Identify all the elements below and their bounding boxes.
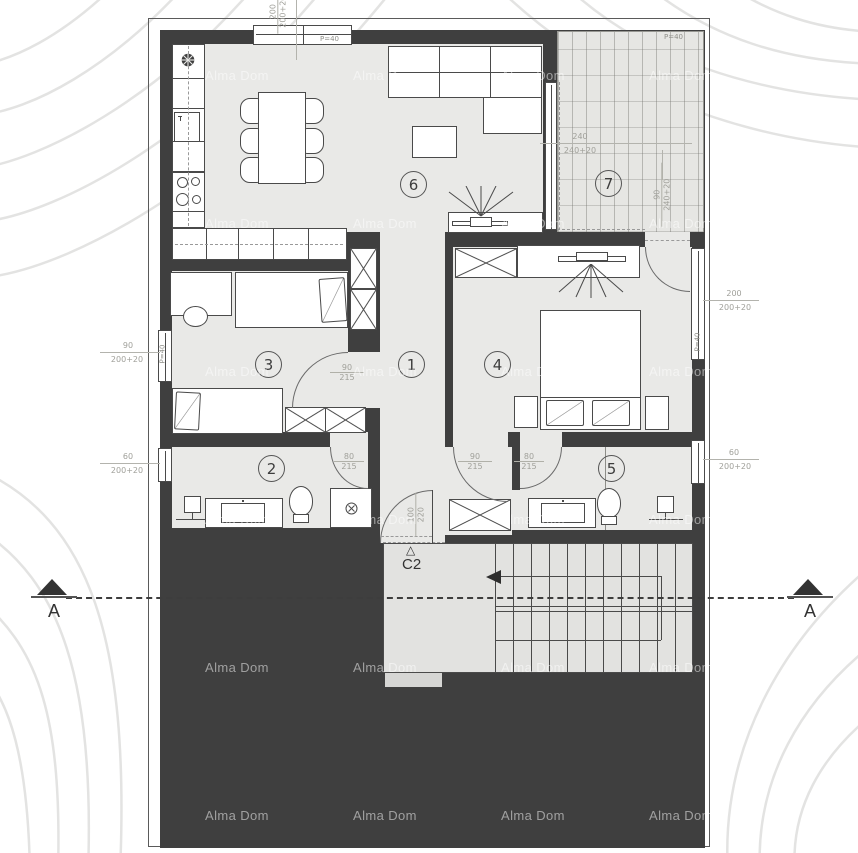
dim-line-right1 (703, 300, 759, 301)
dining-chair (304, 157, 324, 183)
window-right-room5 (691, 440, 705, 484)
pillow (592, 400, 630, 426)
room-number-5: 5 (598, 455, 625, 482)
washbasin-base (649, 519, 683, 520)
sofa (388, 46, 542, 98)
dim-line-right2 (703, 459, 759, 460)
section-line (66, 597, 794, 599)
door-gap-room4 (453, 432, 508, 447)
room-number-3: 3 (255, 351, 282, 378)
room-number-2: 2 (258, 455, 285, 482)
desk-chair (183, 306, 208, 327)
p40-window-left: P=40 (159, 345, 167, 364)
balcony-sliding-door (545, 82, 557, 230)
dim-top-window: 200200+20 (268, 0, 287, 34)
dim-entry-door: 100220 (406, 493, 425, 537)
wardrobe (325, 407, 366, 433)
vanity (528, 498, 596, 528)
stair-landing-line2 (495, 611, 693, 612)
terrace-edge-dashed (557, 229, 645, 230)
nightstand (645, 396, 669, 430)
coffee-table (412, 126, 457, 158)
dim-line-left2 (100, 463, 160, 464)
kitchen-dash-line-v (188, 46, 189, 226)
washbasin-pedestal (184, 496, 201, 513)
pillow (318, 277, 347, 323)
dim-door-room3: 90215 (330, 363, 364, 382)
section-label-right: A (804, 601, 816, 622)
balcony-door-dashed (559, 82, 560, 230)
stair-mark-label: C2 (402, 556, 421, 573)
stair-lower-tab (385, 673, 442, 687)
nightstand (514, 396, 538, 428)
wardrobe (350, 248, 377, 289)
stair-landing-line1 (495, 606, 693, 607)
section-marker-right (793, 579, 823, 595)
dining-chair (240, 157, 260, 183)
door-gap-room5 (520, 432, 562, 447)
p40-terrace: P=40 (664, 33, 683, 41)
dim-line-terrace-w (540, 143, 692, 144)
dim-door-room4: 90215 (458, 452, 492, 471)
stair-mark-symbol: △ (406, 543, 415, 557)
room-number-4: 4 (484, 351, 511, 378)
kitchen-dash-line-h (175, 244, 343, 245)
tv-bedroom-box (576, 252, 608, 261)
pillow (174, 391, 201, 430)
dining-chair (304, 98, 324, 124)
wardrobe (449, 499, 511, 531)
dim-left2-bottom: 200+20 (102, 466, 152, 475)
section-underline-right (787, 596, 833, 598)
stair-rail-top (500, 576, 661, 577)
dim-left2-top: 60 (108, 452, 148, 461)
dim-left1-bottom: 200+20 (102, 355, 152, 364)
dim-left1-top: 90 (108, 341, 148, 350)
door-gap-room2 (330, 432, 368, 447)
dim-line-top-window (296, 0, 297, 60)
stair-direction-arrow (486, 570, 501, 584)
kitchen-sink (174, 112, 200, 142)
dining-chair (240, 98, 260, 124)
washbasin-pedestal (657, 496, 674, 513)
dim-right1-bottom: 200+20 (710, 303, 760, 312)
section-marker-left (37, 579, 67, 595)
section-label-left: A (48, 601, 60, 622)
p40-window-right: P=40 (694, 333, 702, 352)
pillow (546, 400, 584, 426)
shower-drain-icon (344, 501, 359, 516)
dim-right2-top: 60 (712, 448, 756, 457)
section-underline-left (31, 596, 77, 598)
dining-chair (304, 128, 324, 154)
dim-right2-bottom: 200+20 (710, 462, 760, 471)
toilet (597, 488, 621, 528)
terrace-door-lintel (645, 240, 690, 241)
sofa-chaise (483, 97, 542, 134)
tv-signal-icon (556, 264, 626, 300)
dim-terrace-w-top: 240 (558, 132, 602, 141)
p40-top-window: P=40 (320, 35, 339, 43)
dim-right1-top: 200 (712, 289, 756, 298)
wardrobe (350, 289, 377, 330)
dim-terrace-w-bottom: 240+20 (554, 146, 606, 155)
room-number-1: 1 (398, 351, 425, 378)
room-number-7: 7 (595, 170, 622, 197)
tv-signal-icon (446, 186, 516, 218)
stair-rail-right (661, 576, 662, 640)
dining-chair (240, 128, 260, 154)
dining-table (258, 92, 306, 184)
dim-line-left1 (100, 352, 160, 353)
wardrobe (455, 248, 517, 278)
wardrobe (285, 407, 326, 433)
vanity (205, 498, 283, 528)
floor-plan: 200200+20 P=40 P=40 P=40 P=40 240 240+20… (0, 0, 858, 853)
room-number-6: 6 (400, 171, 427, 198)
dim-door-room5: 80215 (514, 452, 544, 471)
dim-terrace-d: 90240+20 (652, 163, 671, 227)
tv-living-box (470, 217, 492, 227)
toilet (289, 486, 313, 526)
window-left-room2 (158, 448, 172, 482)
stair-rail-bottom (495, 640, 661, 641)
stair-treads (495, 544, 693, 672)
dim-door-room2: 80215 (334, 452, 364, 471)
entry-door-leaf (432, 490, 433, 543)
